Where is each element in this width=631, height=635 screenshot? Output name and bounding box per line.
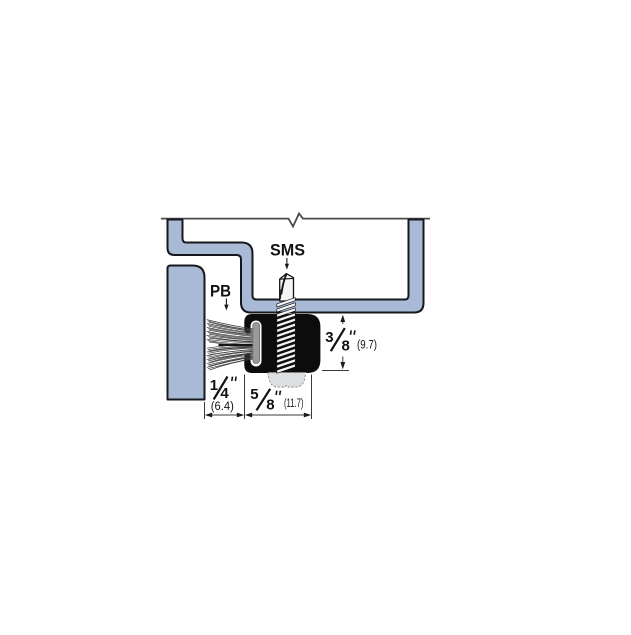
svg-text:SMS: SMS	[270, 240, 305, 259]
svg-text:PB: PB	[210, 281, 231, 300]
svg-text:(9.7): (9.7)	[357, 339, 377, 351]
svg-text:5: 5	[250, 386, 258, 403]
svg-text:(11.7): (11.7)	[284, 398, 304, 410]
svg-text:3: 3	[325, 329, 333, 346]
svg-text:(6.4): (6.4)	[211, 401, 234, 413]
svg-text:8: 8	[342, 337, 350, 354]
svg-text:1: 1	[210, 377, 218, 394]
svg-text:8: 8	[266, 397, 274, 414]
svg-text:4: 4	[220, 385, 229, 402]
